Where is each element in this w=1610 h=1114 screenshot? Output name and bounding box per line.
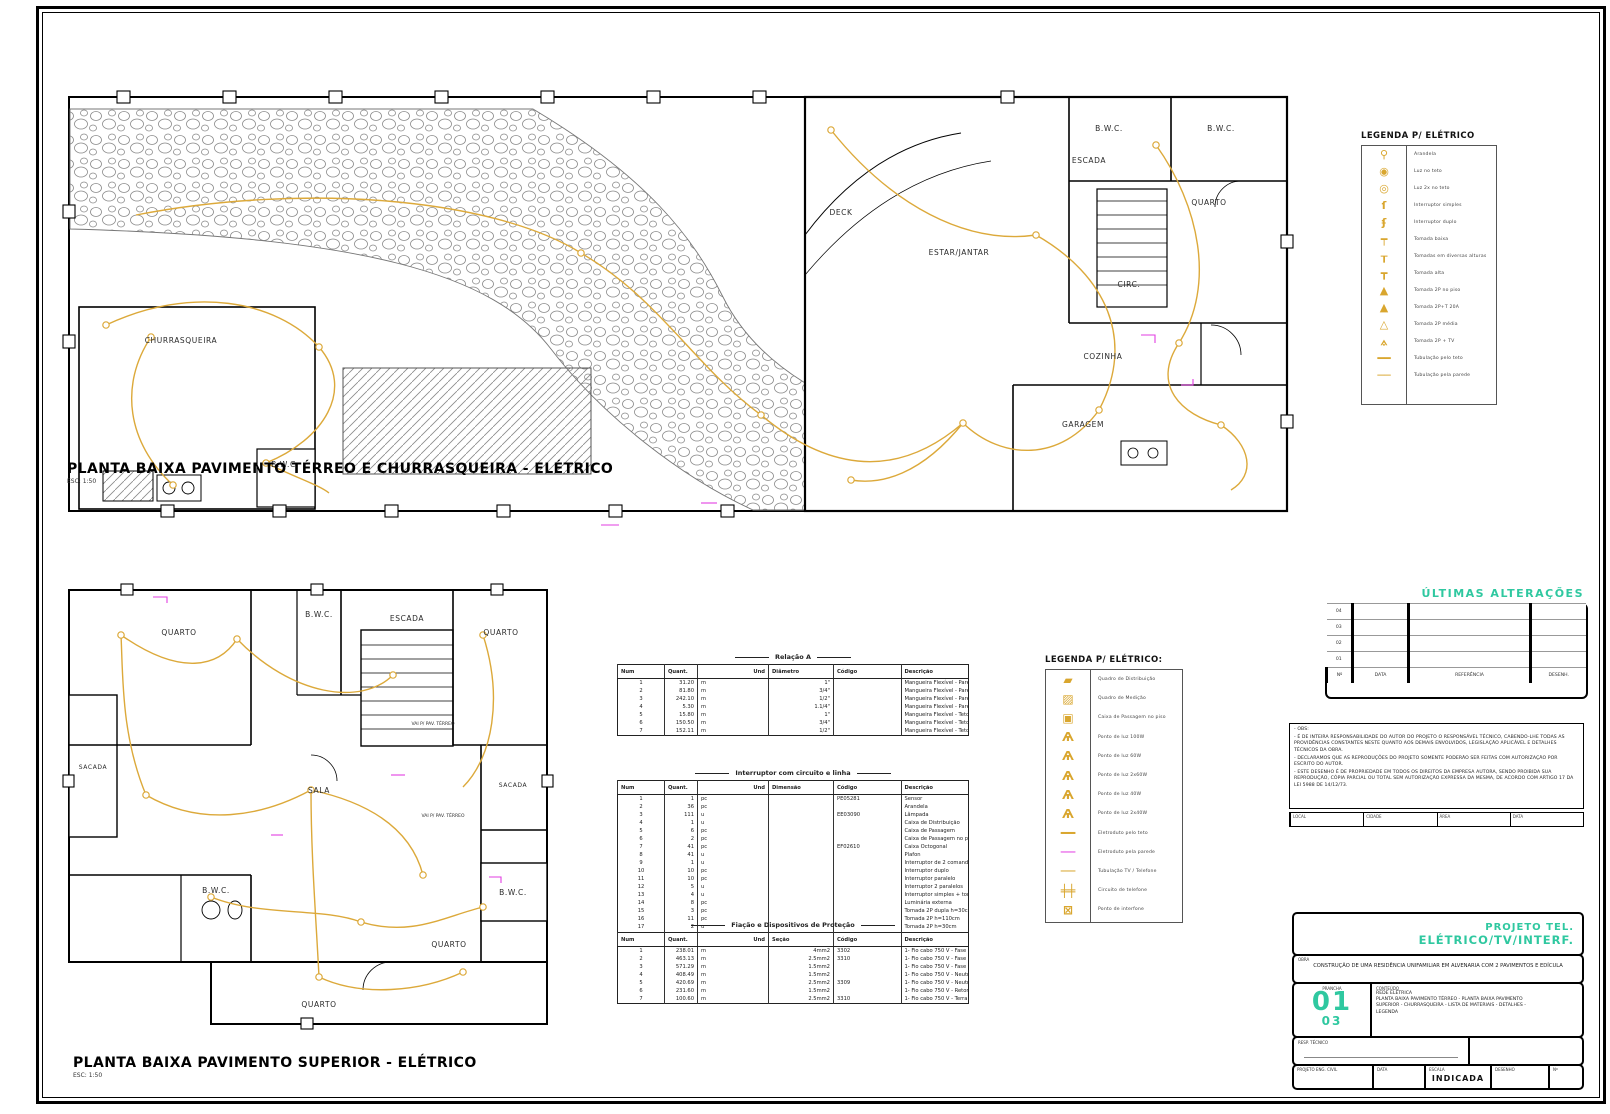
column-header: Num: [618, 665, 665, 679]
plan-superior-walls: [63, 584, 553, 1029]
rev-number: 04: [1327, 604, 1353, 620]
cell-quant: 150.50: [665, 719, 698, 727]
legend-item-label: Quadro de Distribuição: [1090, 677, 1155, 682]
revisions-column-header: DESENH.: [1531, 668, 1586, 684]
legend-item: ━━ Tubulação pelo teto: [1362, 350, 1496, 367]
cell-num: 2: [618, 803, 665, 811]
legend-item-label: Ponto de luz 60W: [1090, 754, 1141, 759]
cell-diametro: 1.1/4": [769, 703, 834, 711]
info-cell-label: LOCAL: [1290, 813, 1363, 826]
info-strip: LOCALCIDADEÁREADATA: [1289, 812, 1584, 827]
rev-date: [1353, 636, 1409, 652]
cell-dimensao: [769, 843, 834, 851]
escala-value: INDICADA: [1429, 1074, 1487, 1083]
legend-symbol-icon: ⟑: [1362, 335, 1406, 349]
rev-date: [1353, 604, 1409, 620]
cell-num: 2: [618, 955, 665, 963]
cell-num: 8: [618, 851, 665, 859]
legend-symbol-icon: ──: [1362, 369, 1406, 382]
legend-item-label: Quadro de Medição: [1090, 696, 1146, 701]
cell-label: Nº: [1553, 1067, 1579, 1072]
table-row: 3 111 u EE03090 Lâmpada: [618, 811, 969, 819]
cell-descricao: 1- Fio cabo 750 V - Fase: [901, 947, 969, 956]
cell-quant: 408.49: [665, 971, 698, 979]
desenho-cell: DESENHO: [1490, 1066, 1548, 1088]
resp-extra-cell: [1468, 1038, 1582, 1064]
legend-item: Ѧ Ponto de luz 40W: [1046, 785, 1182, 804]
legend-symbol-icon: ⊠: [1046, 903, 1090, 917]
legend-symbol-icon: Ѧ: [1046, 730, 1090, 744]
column-header: Und: [698, 933, 769, 947]
cell-descricao: Luminária externa: [901, 899, 969, 907]
cell-descricao: Plafon: [901, 851, 969, 859]
cell-descricao: Mangueira Flexível - Parede: [901, 687, 969, 695]
cell-num: 2: [618, 687, 665, 695]
cell-dimensao: [769, 883, 834, 891]
conteudo-cell: CONTEÚDO REDE ELÉTRICA PLANTA BAIXA PAVI…: [1372, 984, 1582, 1036]
legend-symbol-icon: ┰: [1362, 250, 1406, 263]
cell-codigo: [834, 827, 902, 835]
legend-item-label: Tomadas em diversas alturas: [1406, 254, 1486, 259]
svg-text:SALA: SALA: [308, 786, 330, 795]
cell-num: 11: [618, 875, 665, 883]
cell-descricao: Caixa de Distribuição: [901, 819, 969, 827]
rev-number: 02: [1327, 636, 1353, 652]
cell-num: 1: [618, 947, 665, 956]
column-header: Seção: [769, 933, 834, 947]
cell-und: m: [698, 963, 769, 971]
cell-und: m: [698, 711, 769, 719]
cell-diametro: 3/4": [769, 687, 834, 695]
cell-secao: 1.5mm2: [769, 971, 834, 979]
table-row: 6 231.60 m 1.5mm2 1- Fio cabo 750 V - Re…: [618, 987, 969, 995]
legend-symbol-icon: ▣: [1046, 711, 1090, 725]
table-row: 5 6 pc Caixa de Passagem: [618, 827, 969, 835]
cell-descricao: 1- Fio cabo 750 V - Neutro: [901, 979, 969, 987]
cell-codigo: [834, 899, 902, 907]
column-header: Quant.: [665, 933, 698, 947]
cell-quant: 81.80: [665, 687, 698, 695]
svg-text:ESTAR/JANTAR: ESTAR/JANTAR: [929, 248, 990, 257]
legend-item-label: Luz 2x no teto: [1406, 186, 1450, 191]
notes-box: - OBS:- É DE INTEIRA RESPONSABILIDADE DO…: [1289, 723, 1584, 809]
legend-symbol-icon: ┯: [1362, 233, 1406, 246]
cell-diametro: 3/4": [769, 719, 834, 727]
cell-dimensao: [769, 875, 834, 883]
cell-codigo: [834, 727, 902, 736]
legend-item: ⟑ Tomada 2P + TV: [1362, 333, 1496, 350]
cell-quant: 41: [665, 843, 698, 851]
cell-codigo: [834, 711, 902, 719]
legend-item-label: Circuito de telefone: [1090, 888, 1147, 893]
cell-und: m: [698, 979, 769, 987]
cell-quant: 152.11: [665, 727, 698, 736]
prancha-cell: PRANCHA 01 03: [1294, 984, 1372, 1036]
table-row: 1 31.20 m 1" Mangueira Flexível - Parede: [618, 679, 969, 688]
rev-reference: [1409, 652, 1531, 668]
cell-secao: 2.5mm2: [769, 955, 834, 963]
table-row: 8 41 u Plafon: [618, 851, 969, 859]
cell-und: m: [698, 679, 769, 688]
cell-und: u: [698, 811, 769, 819]
cell-codigo: [834, 867, 902, 875]
legend-symbol-icon: ▲: [1362, 284, 1406, 297]
cell-und: pc: [698, 795, 769, 804]
cell-descricao: 1- Fio cabo 750 V - Fase: [901, 963, 969, 971]
obra-label: OBRA: [1298, 957, 1578, 962]
cell-codigo: [834, 971, 902, 979]
legend-symbol-icon: ╪╪: [1046, 884, 1090, 898]
cell-descricao: 1- Fio cabo 750 V - Fase: [901, 955, 969, 963]
legend-item-label: Tomada 2P+T 20A: [1406, 305, 1459, 310]
legend-item: ━━ Eletroduto pelo teto: [1046, 824, 1182, 843]
revisions-header-row: NºDATAREFERÊNCIADESENH.: [1327, 668, 1586, 684]
table-row: 11 10 pc Interruptor paralelo: [618, 875, 969, 883]
plan-superior-scale: ESC: 1:50: [73, 1072, 477, 1079]
cell-num: 14: [618, 899, 665, 907]
table-header-row: NumQuant.UndDimensãoCódigoDescrição: [618, 781, 969, 795]
cell-label: DESENHO: [1495, 1067, 1545, 1072]
svg-text:B.W.C.: B.W.C.: [305, 610, 333, 619]
cell-codigo: [834, 819, 902, 827]
cell-codigo: [834, 679, 902, 688]
cell-dimensao: [769, 835, 834, 843]
legend-symbol-icon: ┳: [1362, 267, 1406, 280]
cell-num: 5: [618, 979, 665, 987]
cell-codigo: [834, 851, 902, 859]
cell-secao: 2.5mm2: [769, 979, 834, 987]
cell-codigo: [834, 687, 902, 695]
cell-dimensao: [769, 819, 834, 827]
project-name-box: PROJETO TEL. ELÉTRICO/TV/INTERF.: [1292, 912, 1584, 956]
cell-codigo: [834, 891, 902, 899]
cell-und: m: [698, 947, 769, 956]
column-header: Und: [698, 781, 769, 795]
cell-descricao: Interruptor simples + tomada: [901, 891, 969, 899]
signature-line: [1304, 1057, 1458, 1058]
resp-tecnico-cell: RESP. TÉCNICO: [1294, 1038, 1468, 1064]
cell-num: 3: [618, 963, 665, 971]
resp-tecnico-box: RESP. TÉCNICO: [1292, 1036, 1584, 1066]
legend-item-label: Tomada 2P + TV: [1406, 339, 1455, 344]
svg-text:DECK: DECK: [829, 208, 853, 217]
numero-cell: Nº: [1548, 1066, 1582, 1088]
cell-und: pc: [698, 875, 769, 883]
cell-codigo: [834, 987, 902, 995]
legend-item-label: Tubulação TV / Telefone: [1090, 869, 1157, 874]
cell-und: m: [698, 955, 769, 963]
cell-dimensao: [769, 827, 834, 835]
cell-label: ESCALA: [1429, 1067, 1487, 1072]
column-header: Und: [698, 665, 769, 679]
cell-num: 6: [618, 987, 665, 995]
legend-item-label: Caixa de Passagem no piso: [1090, 715, 1166, 720]
legend-item: ʄ Interruptor duplo: [1362, 214, 1496, 231]
legend-item: ╪╪ Circuito de telefone: [1046, 881, 1182, 900]
plan-terreo-title-block: PLANTA BAIXA PAVIMENTO TÉRREO E CHURRASQ…: [67, 461, 613, 485]
table-row: 5 420.69 m 2.5mm2 3309 1- Fio cabo 750 V…: [618, 979, 969, 987]
cell-codigo: [834, 883, 902, 891]
table-row: 5 15.80 m 1" Mangueira Flexível - Teto: [618, 711, 969, 719]
cell-quant: 2: [665, 835, 698, 843]
revisions-column-header: DATA: [1353, 668, 1409, 684]
revisions-title: ÚLTIMAS ALTERAÇÕES: [1289, 587, 1584, 600]
rev-drawn: [1531, 636, 1586, 652]
cell-quant: 8: [665, 899, 698, 907]
cell-quant: 571.29: [665, 963, 698, 971]
column-header: Descrição: [901, 781, 969, 795]
cell-label: PROJETO ENG. CIVIL: [1297, 1067, 1369, 1072]
cell-num: 10: [618, 867, 665, 875]
table-row: 6 150.50 m 3/4" Mangueira Flexível - Tet…: [618, 719, 969, 727]
rev-number: 03: [1327, 620, 1353, 636]
cell-descricao: Caixa Octogonal: [901, 843, 969, 851]
legend-item-label: Tomada baixa: [1406, 237, 1448, 242]
cell-codigo: 3310: [834, 955, 902, 963]
cell-codigo: EE03090: [834, 811, 902, 819]
project-title-line2: ELÉTRICO/TV/INTERF.: [1419, 933, 1574, 947]
table-row: 6 2 pc Caixa de Passagem no piso: [618, 835, 969, 843]
table-header-row: NumQuant.UndSeçãoCódigoDescrição: [618, 933, 969, 947]
cell-und: m: [698, 695, 769, 703]
table-row: 4 5.30 m 1.1/4" Mangueira Flexível - Par…: [618, 703, 969, 711]
table-row: 12 5 u Interruptor 2 paralelos: [618, 883, 969, 891]
legend-item-label: Tubulação pela parede: [1406, 373, 1470, 378]
table-row: 3 571.29 m 1.5mm2 1- Fio cabo 750 V - Fa…: [618, 963, 969, 971]
svg-text:GARAGEM: GARAGEM: [1062, 420, 1104, 429]
cell-descricao: Mangueira Flexível - Parede: [901, 679, 969, 688]
cell-quant: 15.80: [665, 711, 698, 719]
cell-quant: 5.30: [665, 703, 698, 711]
cell-secao: 1.5mm2: [769, 963, 834, 971]
resp-tecnico-label: RESP. TÉCNICO: [1298, 1040, 1464, 1045]
table-row: 1 1 pc PE05281 Sensor: [618, 795, 969, 804]
cell-codigo: 3309: [834, 979, 902, 987]
cell-und: m: [698, 971, 769, 979]
legend-item-label: Ponto de luz 100W: [1090, 735, 1144, 740]
cell-descricao: Interruptor 2 paralelos: [901, 883, 969, 891]
legend-symbol-icon: Ѧ: [1046, 769, 1090, 783]
legend-symbol-icon: ◎: [1362, 182, 1406, 195]
table-row: 4 408.49 m 1.5mm2 1- Fio cabo 750 V - Ne…: [618, 971, 969, 979]
table-row: 7 41 pc EF02610 Caixa Octogonal: [618, 843, 969, 851]
legend-symbol-icon: ──: [1046, 864, 1090, 878]
table-interruptores-title: Interruptor com circuito e linha: [617, 769, 969, 777]
column-header: Num: [618, 933, 665, 947]
rev-drawn: [1531, 652, 1586, 668]
revision-row: 04: [1327, 604, 1586, 620]
cell-num: 5: [618, 711, 665, 719]
legend-symbol-icon: ʄ: [1362, 216, 1406, 229]
column-header: Descrição: [901, 933, 969, 947]
rev-number: 01: [1327, 652, 1353, 668]
cell-codigo: 3302: [834, 947, 902, 956]
cell-codigo: 3310: [834, 995, 902, 1004]
obra-text: CONSTRUÇÃO DE UMA RESIDÊNCIA UNIFAMILIAR…: [1298, 963, 1578, 970]
rev-date: [1353, 652, 1409, 668]
cell-und: m: [698, 719, 769, 727]
legend-item: ▲ Tomada 2P+T 20A: [1362, 299, 1496, 316]
cell-num: 5: [618, 827, 665, 835]
legend-item: ── Tubulação TV / Telefone: [1046, 862, 1182, 881]
legend-item-label: Ponto de interfone: [1090, 907, 1144, 912]
sheet-content-box: PRANCHA 01 03 CONTEÚDO REDE ELÉTRICA PLA…: [1292, 982, 1584, 1038]
svg-text:QUARTO: QUARTO: [483, 628, 518, 637]
cell-quant: 463.13: [665, 955, 698, 963]
legend-item-label: Luz no teto: [1406, 169, 1442, 174]
cell-num: 15: [618, 907, 665, 915]
cell-und: m: [698, 703, 769, 711]
table-row: 7 100.60 m 2.5mm2 3310 1- Fio cabo 750 V…: [618, 995, 969, 1004]
cell-descricao: Interruptor paralelo: [901, 875, 969, 883]
obra-box: OBRA CONSTRUÇÃO DE UMA RESIDÊNCIA UNIFAM…: [1292, 954, 1584, 984]
column-header: Diâmetro: [769, 665, 834, 679]
cell-descricao: Mangueira Flexível - Teto: [901, 711, 969, 719]
cell-num: 6: [618, 719, 665, 727]
svg-text:QUARTO: QUARTO: [1191, 198, 1226, 207]
legend-bottom-title: LEGENDA P/ ELÉTRICO:: [1045, 655, 1183, 665]
revision-row: 03: [1327, 620, 1586, 636]
cell-label: DATA: [1377, 1067, 1421, 1072]
legend-item-label: Eletroduto pelo teto: [1090, 831, 1148, 836]
legend-item-label: Ponto de luz 40W: [1090, 792, 1141, 797]
cell-quant: 420.69: [665, 979, 698, 987]
cell-descricao: Mangueira Flexível - Parede: [901, 695, 969, 703]
cell-quant: 5: [665, 883, 698, 891]
column-header: Código: [834, 933, 902, 947]
cell-descricao: Mangueira Flexível - Parede: [901, 703, 969, 711]
cell-num: 3: [618, 811, 665, 819]
note-line: - É DE INTEIRA RESPONSABILIDADE DO AUTOR…: [1294, 735, 1579, 754]
drawing-sheet: CHURRASQUEIRA B.W.C. DECK ESTAR/JANTAR E…: [36, 6, 1606, 1104]
cell-descricao: Interruptor duplo: [901, 867, 969, 875]
table-row: 2 463.13 m 2.5mm2 3310 1- Fio cabo 750 V…: [618, 955, 969, 963]
cell-quant: 231.60: [665, 987, 698, 995]
cell-num: 4: [618, 971, 665, 979]
cell-descricao: Caixa de Passagem no piso: [901, 835, 969, 843]
cell-quant: 36: [665, 803, 698, 811]
projeto-eng-cell: PROJETO ENG. CIVIL: [1294, 1066, 1372, 1088]
cell-quant: 238.01: [665, 947, 698, 956]
cell-codigo: [834, 835, 902, 843]
cell-codigo: [834, 875, 902, 883]
cell-und: pc: [698, 803, 769, 811]
svg-text:SACADA: SACADA: [499, 782, 528, 789]
legend-item-label: Arandela: [1406, 152, 1436, 157]
cell-num: 7: [618, 843, 665, 851]
table-fiacao: Fiação e Dispositivos de Proteção NumQua…: [617, 921, 969, 1004]
info-cell-label: DATA: [1510, 813, 1583, 826]
legend-item-label: Tomada 2P média: [1406, 322, 1458, 327]
cell-codigo: [834, 719, 902, 727]
conteudo-line: LEGENDA: [1376, 1010, 1578, 1016]
revision-row: 02: [1327, 636, 1586, 652]
legend-symbol-icon: ──: [1046, 845, 1090, 859]
legend-symbol-icon: ━━: [1046, 826, 1090, 840]
plan-terreo-title: PLANTA BAIXA PAVIMENTO TÉRREO E CHURRASQ…: [67, 461, 613, 477]
cell-dimensao: [769, 891, 834, 899]
cell-descricao: Caixa de Passagem: [901, 827, 969, 835]
legend-symbol-icon: ▨: [1046, 692, 1090, 706]
plan-superior-title: PLANTA BAIXA PAVIMENTO SUPERIOR - ELÉTRI…: [73, 1055, 477, 1071]
legend-item: ſ Interruptor simples: [1362, 197, 1496, 214]
cell-num: 1: [618, 795, 665, 804]
legend-item: ── Tubulação pela parede: [1362, 367, 1496, 384]
cell-quant: 41: [665, 851, 698, 859]
table-row: 2 81.80 m 3/4" Mangueira Flexível - Pare…: [618, 687, 969, 695]
cell-descricao: Mangueira Flexível - Teto: [901, 727, 969, 736]
legend-eletrico-top: LEGENDA P/ ELÉTRICO ⚲ Arandela ◉ Luz no …: [1361, 131, 1497, 405]
legend-item: Ѧ Ponto de luz 60W: [1046, 747, 1182, 766]
legend-item-label: Tomada alta: [1406, 271, 1444, 276]
revisions-column-header: REFERÊNCIA: [1409, 668, 1531, 684]
cell-codigo: [834, 695, 902, 703]
table-row: 14 8 pc Luminária externa: [618, 899, 969, 907]
legend-symbol-icon: ▰: [1046, 673, 1090, 687]
cell-dimensao: [769, 867, 834, 875]
legend-item: Ѧ Ponto de luz 2x40W: [1046, 804, 1182, 823]
cell-quant: 10: [665, 867, 698, 875]
cell-quant: 4: [665, 891, 698, 899]
legend-item: △ Tomada 2P média: [1362, 316, 1496, 333]
cell-und: u: [698, 819, 769, 827]
table-header-row: NumQuant.UndDiâmetroCódigoDescrição: [618, 665, 969, 679]
legend-item-label: Interruptor duplo: [1406, 220, 1457, 225]
cell-dimensao: [769, 899, 834, 907]
legend-symbol-icon: △: [1362, 318, 1406, 331]
legend-symbol-icon: ◉: [1362, 165, 1406, 178]
cell-num: 7: [618, 727, 665, 736]
legend-symbol-icon: ſ: [1362, 199, 1406, 212]
cell-und: m: [698, 987, 769, 995]
svg-text:QUARTO: QUARTO: [431, 940, 466, 949]
table-row: 4 1 u Caixa de Distribuição: [618, 819, 969, 827]
legend-item: ▣ Caixa de Passagem no piso: [1046, 708, 1182, 727]
cell-descricao: 1- Fio cabo 750 V - Neutro: [901, 971, 969, 979]
plan-superior-drawing: QUARTO B.W.C. ESCADA QUARTO SACADA SALA …: [61, 575, 569, 1037]
legend-symbol-icon: Ѧ: [1046, 749, 1090, 763]
legend-bottom-items: ▰ Quadro de Distribuição ▨ Quadro de Med…: [1045, 669, 1183, 923]
legend-symbol-icon: ▲: [1362, 301, 1406, 314]
cell-num: 4: [618, 703, 665, 711]
cell-quant: 31.20: [665, 679, 698, 688]
table-row: 15 3 pc Tomada 2P dupla h=30cm: [618, 907, 969, 915]
svg-text:B.W.C.: B.W.C.: [202, 886, 230, 895]
cell-quant: 3: [665, 907, 698, 915]
legend-item-label: Tomada 2P no piso: [1406, 288, 1460, 293]
legend-symbol-icon: Ѧ: [1046, 788, 1090, 802]
cell-und: pc: [698, 907, 769, 915]
cell-num: 13: [618, 891, 665, 899]
svg-text:B.W.C.: B.W.C.: [1095, 124, 1123, 133]
cell-descricao: Arandela: [901, 803, 969, 811]
table-row: 10 10 pc Interruptor duplo: [618, 867, 969, 875]
plan-superior-title-block: PLANTA BAIXA PAVIMENTO SUPERIOR - ELÉTRI…: [73, 1055, 477, 1079]
cell-quant: 6: [665, 827, 698, 835]
legend-item: ▰ Quadro de Distribuição: [1046, 670, 1182, 689]
legend-symbol-icon: ━━: [1362, 352, 1406, 365]
plan-terreo-scale: ESC: 1:50: [67, 478, 613, 485]
legend-item: ┯ Tomada baixa: [1362, 231, 1496, 248]
cell-codigo: [834, 859, 902, 867]
table-interruptores: Interruptor com circuito e linha NumQuan…: [617, 769, 969, 940]
column-header: Num: [618, 781, 665, 795]
legend-top-title: LEGENDA P/ ELÉTRICO: [1361, 131, 1497, 141]
svg-text:ESCADA: ESCADA: [1072, 156, 1107, 165]
cell-num: 3: [618, 695, 665, 703]
table-row: 1 238.01 m 4mm2 3302 1- Fio cabo 750 V -…: [618, 947, 969, 956]
title-block: PROJETO TEL. ELÉTRICO/TV/INTERF. OBRA CO…: [1292, 914, 1584, 1090]
